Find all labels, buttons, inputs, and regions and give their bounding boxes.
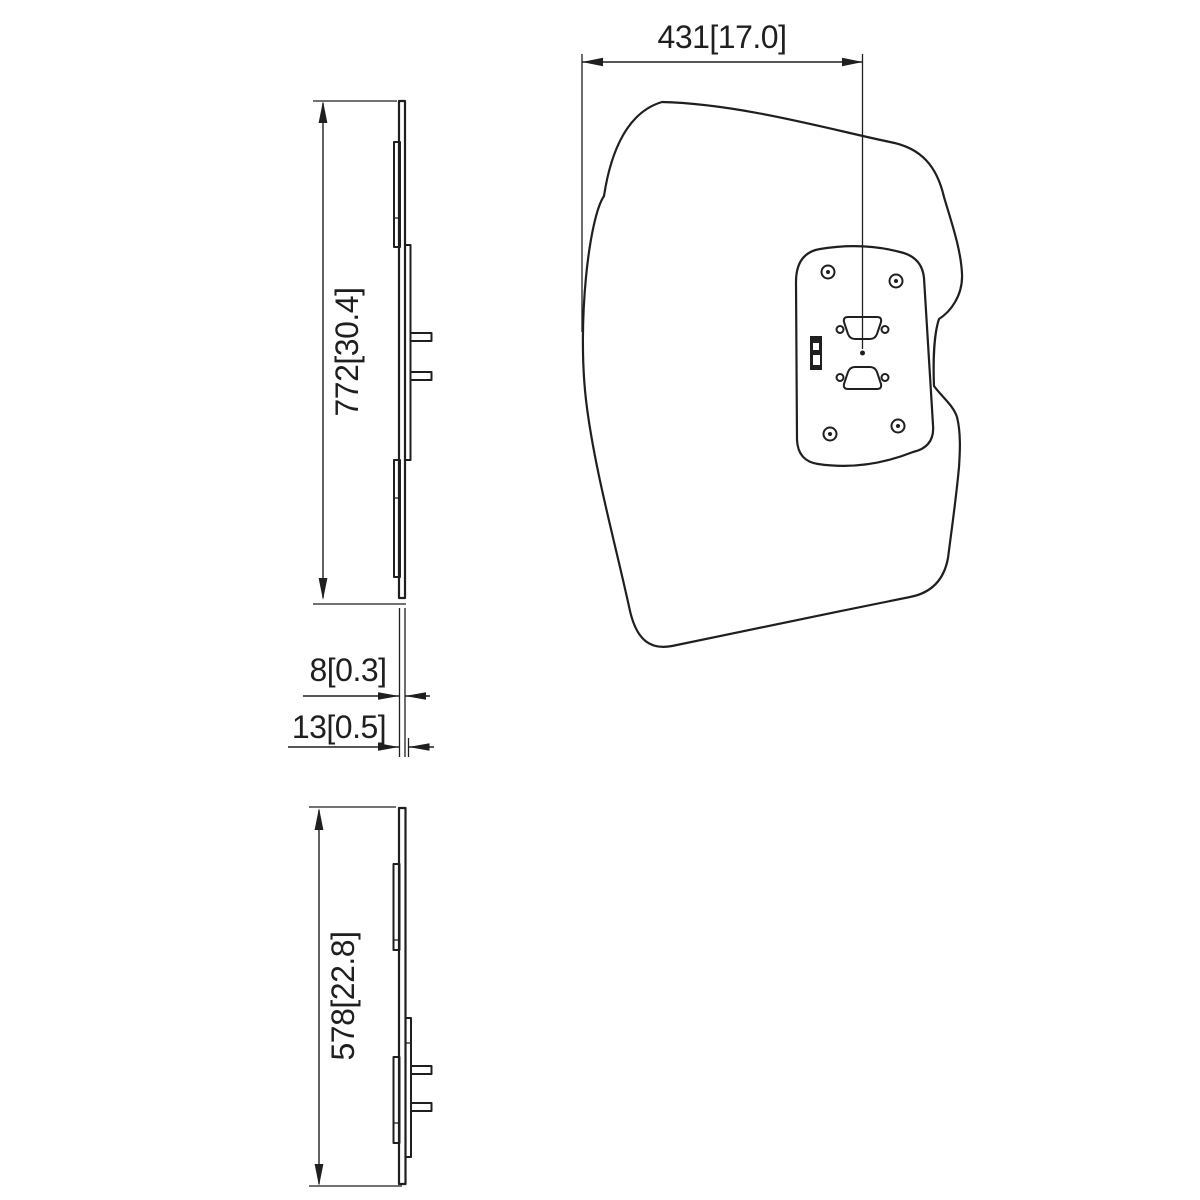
dimension-text-width: 431[17.0] — [658, 19, 787, 55]
panel-outline — [583, 102, 962, 647]
arrowhead-right — [378, 692, 399, 700]
upper-bracket-strip — [394, 864, 400, 950]
usb-port — [810, 336, 822, 370]
dimension-text-thickness-glass: 8[0.3] — [309, 652, 386, 688]
thickness-dimensions: 8[0.3] 13[0.5] — [288, 608, 434, 757]
screw-hole — [824, 428, 837, 441]
front-view: 431[17.0] — [582, 19, 962, 647]
arrowhead-up — [319, 101, 328, 123]
arrowhead-right — [842, 58, 863, 66]
arrowhead-left — [409, 743, 430, 751]
side-view-top: 772[30.4] — [313, 101, 432, 604]
hook-tab — [411, 1103, 432, 1111]
side-view-bottom: 578[22.8] — [309, 807, 432, 1186]
lower-bracket-strip — [394, 1057, 400, 1143]
arrowhead-down — [319, 578, 328, 600]
technical-drawing: 772[30.4] 8[0.3] 13[0.5] — [0, 0, 1200, 1200]
dimension-text-thickness-total: 13[0.5] — [292, 709, 386, 745]
arrowhead-up — [315, 808, 324, 830]
connector-ear-hole — [837, 326, 844, 333]
mount-bracket-profile — [405, 245, 411, 460]
screw-hole — [890, 275, 903, 288]
arrowhead-right — [378, 743, 399, 751]
hook-tab — [411, 333, 432, 341]
screw-hole — [892, 420, 905, 433]
hook-tab — [411, 372, 432, 380]
connector-ear-hole — [837, 374, 844, 381]
technical-drawing-canvas: 772[30.4] 8[0.3] 13[0.5] — [0, 0, 1200, 1200]
dimension-text-height-side-top: 772[30.4] — [329, 288, 365, 417]
arrowhead-left — [405, 692, 426, 700]
screw-hole — [822, 266, 835, 279]
connector-ear-hole — [882, 326, 889, 333]
dsub-connector-lower — [837, 367, 889, 389]
dimension-text-height-side-bottom: 578[22.8] — [325, 932, 361, 1061]
connector-ear-hole — [882, 374, 889, 381]
arrowhead-down — [315, 1164, 324, 1186]
upper-bracket-strip — [394, 142, 400, 247]
arrowhead-left — [582, 58, 603, 66]
hook-tab — [411, 1066, 432, 1074]
mount-bracket-profile — [406, 1018, 412, 1157]
lower-bracket-strip — [394, 460, 400, 577]
center-hole — [860, 351, 865, 356]
